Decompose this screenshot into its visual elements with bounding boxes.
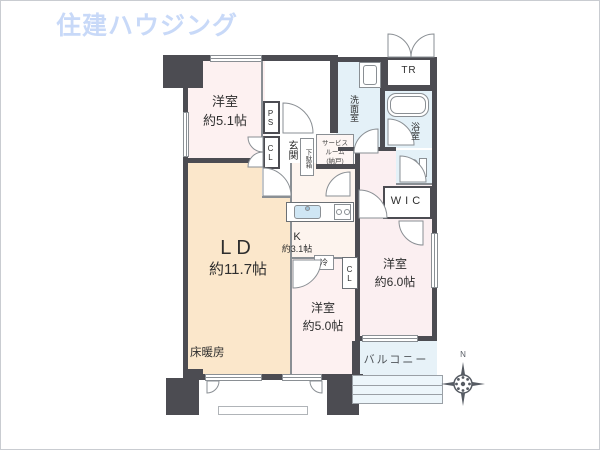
closet-kitchen-label: CL [345, 261, 354, 286]
bathroom-label: 浴室 [409, 117, 422, 145]
bedroom1-name: 洋室 [184, 92, 266, 111]
bedroom1-size: 約5.1帖 [184, 111, 266, 130]
entrance-door-arc [283, 103, 313, 133]
refrigerator-label: 冷 [314, 257, 334, 268]
floorplan-image: 住建ハウジング [0, 0, 600, 450]
bedroom1-label: 洋室 約5.1帖 [184, 92, 266, 130]
closet-hall-label: CL [266, 139, 275, 167]
window-swing-right-arc [310, 381, 322, 393]
bedroom1-closet-door1-arc [248, 137, 263, 152]
bedroom2-name: 洋室 [290, 299, 356, 317]
service-room-line2: ルーム [317, 148, 353, 157]
bedroom3-name: 洋室 [357, 255, 433, 273]
window-swing-left-arc [207, 381, 219, 393]
trunk-door-right-arc [411, 34, 434, 57]
bedroom2-label: 洋室 約5.0帖 [290, 299, 356, 335]
ld-size: 約11.7帖 [186, 260, 290, 280]
pipe-space-label: PS [266, 104, 275, 132]
shoe-cabinet-label: 下駄箱 [302, 143, 312, 175]
balcony-label: バルコニー [358, 351, 434, 367]
floor-heating-label: 床暖房 [190, 344, 225, 360]
kitchen-name: K [272, 231, 322, 244]
wic-label: WIC [383, 195, 432, 207]
kitchen-size: 約3.1帖 [272, 244, 322, 255]
toilet-door-arc [400, 156, 426, 182]
bedroom3-size: 約6.0帖 [357, 273, 433, 291]
bedroom2-size: 約5.0帖 [290, 317, 356, 335]
hall-door-ld-arc [263, 168, 291, 196]
entrance-label: 玄関 [284, 132, 299, 168]
washroom-door-arc [354, 129, 378, 153]
trunk-door-left-arc [388, 34, 411, 57]
wic-door-arc [399, 221, 423, 245]
compass-north-label: N [455, 350, 471, 359]
trunk-room-label: TR [386, 65, 432, 76]
bedroom1-closet-door2-arc [248, 152, 263, 167]
service-room-line3: (納戸) [317, 157, 353, 166]
hall-door-service-arc [326, 172, 350, 196]
bedroom3-label: 洋室 約6.0帖 [357, 255, 433, 291]
service-room-label: サービス ルーム (納戸) [317, 139, 353, 166]
compass-icon [441, 362, 485, 406]
washroom-label: 洗面室 [348, 87, 361, 129]
service-room-line1: サービス [317, 139, 353, 148]
linework-layer [0, 0, 600, 450]
kitchen-label: K 約3.1帖 [272, 231, 322, 255]
